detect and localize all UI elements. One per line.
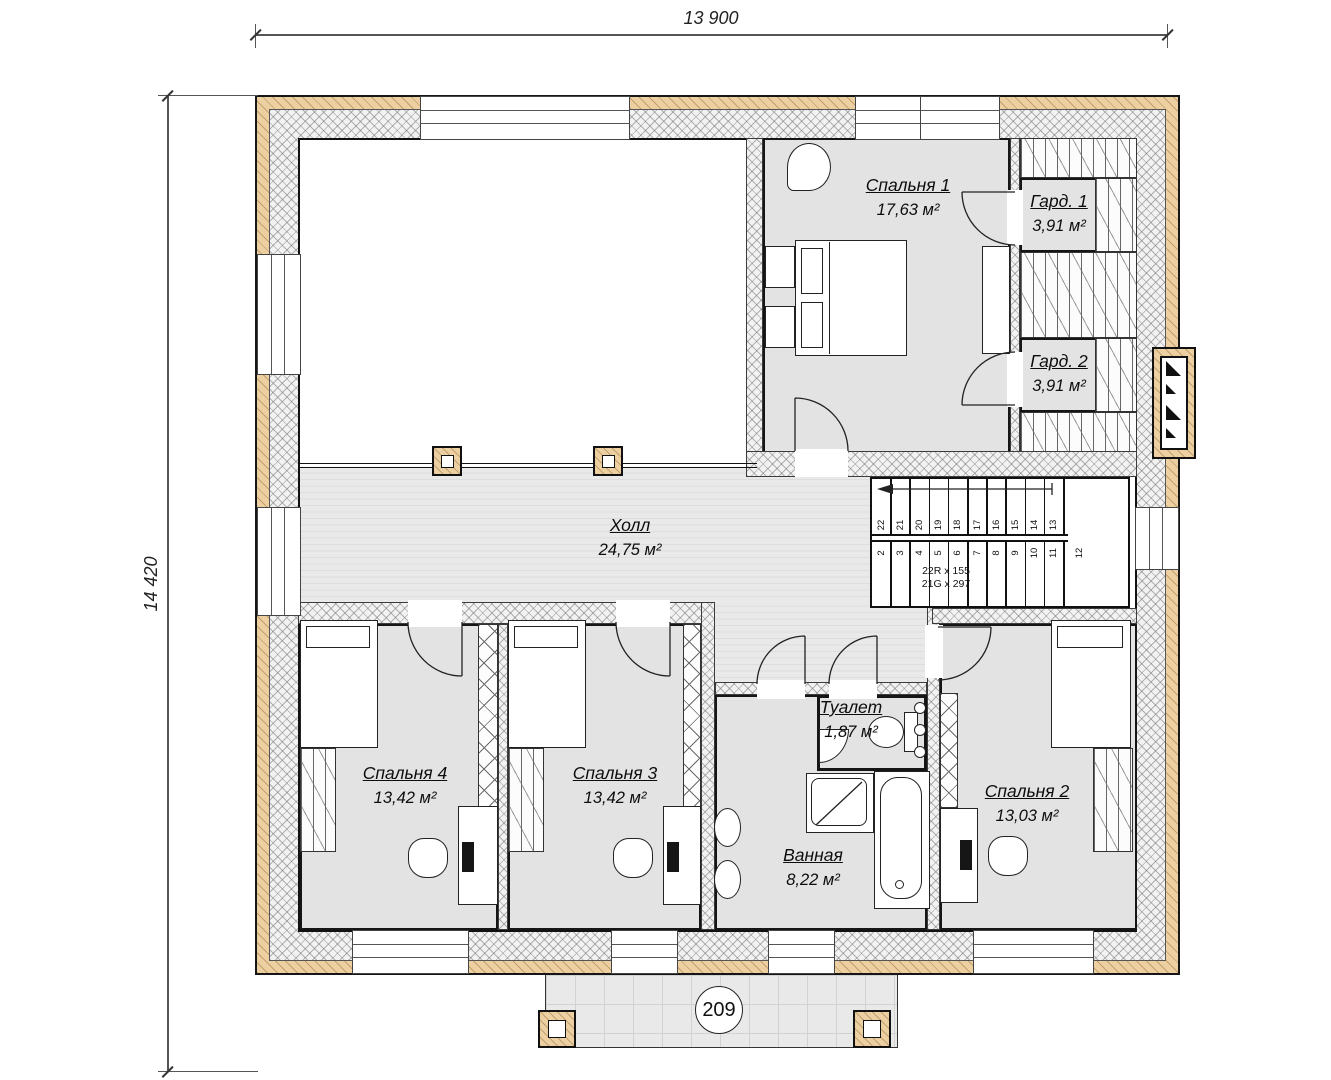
stairs-mid-rail: [872, 534, 1068, 542]
dimension-ext-line: [158, 95, 258, 96]
nightstand: [765, 246, 795, 288]
wall-void-bedroom1: [746, 138, 763, 453]
wardrobe-shelf-band-top: [1020, 138, 1137, 178]
stair-tread-line: [948, 479, 950, 534]
stair-tread-number: 6: [952, 543, 964, 563]
stair-tread-number: 21: [895, 515, 907, 535]
room-name: Спальня 1: [833, 172, 983, 198]
dimension-ext-line: [158, 1071, 258, 1072]
wardrobe-shelf-band-mid: [1020, 252, 1137, 338]
room-area: 1,87 м²: [809, 720, 893, 745]
terrace-number: 209: [702, 999, 735, 1022]
stair-tread-line: [890, 542, 892, 606]
window-top-bedroom1: [855, 96, 1000, 140]
window-left-void: [257, 254, 301, 375]
stair-tread-line: [1044, 542, 1046, 606]
stair-tread-line: [929, 542, 931, 606]
stair-tread-line: [929, 479, 931, 534]
stair-tread-line: [986, 479, 988, 534]
wardrobe-unit: [508, 748, 544, 852]
door-opening-bedroom4: [408, 600, 462, 627]
shower-tray: [811, 778, 867, 826]
stair-tread-line: [1063, 542, 1065, 606]
room-label-bedroom3: Спальня 3 13,42 м²: [540, 760, 690, 811]
desk-chair: [988, 836, 1028, 876]
room-area: 13,42 м²: [540, 786, 690, 811]
room-area: 24,75 м²: [555, 538, 705, 563]
dimension-width-label: 13 900: [651, 8, 771, 29]
hall-pocket-floor: [715, 600, 927, 684]
stair-tread-number: 14: [1029, 515, 1041, 535]
towel-radiator: [914, 724, 926, 736]
closet: [478, 624, 498, 808]
stair-tread-number: 4: [914, 543, 926, 563]
room-name: Спальня 2: [952, 778, 1102, 804]
stair-tread-line: [1005, 542, 1007, 606]
stairs-note-line1: 22R x 155: [900, 565, 992, 577]
room-name: Туалет: [809, 694, 893, 720]
room-label-bedroom2: Спальня 2 13,03 м²: [952, 778, 1102, 829]
dimension-line-left: [167, 95, 169, 1072]
terrace-post-right-core: [863, 1020, 881, 1038]
stair-tread-line: [1025, 542, 1027, 606]
room-area: 13,03 м²: [952, 804, 1102, 829]
stair-tread-number: 20: [914, 515, 926, 535]
room-label-toilet: Туалет 1,87 м²: [809, 694, 893, 745]
sink: [714, 808, 741, 847]
void-railing: [298, 463, 757, 468]
hall-post-left-core: [441, 455, 454, 468]
window-bottom-bedroom2: [973, 930, 1094, 974]
hall-post-left: [432, 446, 462, 476]
wall-bedroom1-wardrobes: [1010, 138, 1020, 455]
room-name: Спальня 3: [540, 760, 690, 786]
towel-radiator: [914, 702, 926, 714]
stair-tread-number: 12: [1074, 543, 1086, 563]
terrace-post-left-core: [548, 1020, 566, 1038]
dimension-line-top: [255, 34, 1168, 36]
room-area: 8,22 м²: [738, 868, 888, 893]
stair-tread-number: 19: [933, 515, 945, 535]
pillow: [801, 248, 823, 294]
monitor: [667, 842, 679, 872]
stairs-note-line2: 21G x 297: [900, 578, 992, 590]
stair-tread-line: [948, 542, 950, 606]
stair-tread-number: 10: [1029, 543, 1041, 563]
terrace-number-badge: 209: [695, 986, 743, 1034]
terrace-post-right: [853, 1010, 891, 1048]
shower: [806, 773, 874, 833]
wall-bedroom3-bathroom: [701, 602, 715, 930]
window-right-stairs: [1135, 507, 1179, 570]
door-opening-bedroom1: [795, 449, 848, 477]
terrace-post-left: [538, 1010, 576, 1048]
window-left-hall: [257, 507, 301, 616]
bathtub-drain: [895, 880, 904, 889]
stair-tread-number: 22: [876, 515, 888, 535]
stair-tread-number: 9: [1010, 543, 1022, 563]
window-bottom-bedroom3: [611, 930, 678, 974]
stair-tread-line: [909, 542, 911, 606]
stair-tread-line: [967, 542, 969, 606]
room-label-bedroom1: Спальня 1 17,63 м²: [833, 172, 983, 223]
door-opening-bedroom2: [925, 625, 943, 678]
stair-tread-line: [909, 479, 911, 534]
desk-chair: [613, 838, 653, 878]
wardrobe2-shelving: [1095, 338, 1137, 412]
monitor: [462, 842, 474, 872]
window-bottom-bedroom4: [352, 930, 469, 974]
hall-post-right-core: [602, 455, 615, 468]
stair-tread-number: 5: [933, 543, 945, 563]
stair-tread-line: [1044, 479, 1046, 534]
room-label-bathroom: Ванная 8,22 м²: [738, 842, 888, 893]
nightstand: [765, 306, 795, 348]
pillow: [514, 626, 578, 648]
room-name: Ванная: [738, 842, 888, 868]
room-name: Гард. 1: [1021, 188, 1097, 214]
floor-plan: 22R x 155 21G x 297 22212019181716151413…: [0, 0, 1331, 1080]
room-name: Спальня 4: [330, 760, 480, 786]
stair-tread-line: [890, 479, 892, 534]
stair-tread-number: 2: [876, 543, 888, 563]
stair-tread-line: [967, 479, 969, 534]
staircase: 22R x 155 21G x 297 22212019181716151413…: [870, 477, 1130, 608]
stair-tread-number: 17: [972, 515, 984, 535]
stair-tread-number: 15: [1010, 515, 1022, 535]
tv-cabinet: [982, 246, 1010, 354]
window-top-void: [420, 96, 630, 140]
wardrobe1-shelving: [1095, 178, 1137, 252]
door-opening-bedroom3: [616, 600, 670, 627]
towel-radiator: [914, 746, 926, 758]
stair-tread-number: 3: [895, 543, 907, 563]
room-name: Холл: [555, 512, 705, 538]
stair-tread-line: [986, 542, 988, 606]
stair-tread-number: 16: [991, 515, 1003, 535]
room-label-bedroom4: Спальня 4 13,42 м²: [330, 760, 480, 811]
window-mullion: [920, 96, 921, 140]
armchair: [787, 143, 831, 191]
monitor: [960, 840, 972, 870]
stair-tread-number: 13: [1048, 515, 1060, 535]
stair-tread-number: 7: [972, 543, 984, 563]
wardrobe-shelf-band-bottom: [1020, 412, 1137, 455]
room-label-wardrobe2: Гард. 2 3,91 м²: [1021, 348, 1097, 399]
desk-chair: [408, 838, 448, 878]
sink: [714, 860, 741, 899]
stair-tread-number: 8: [991, 543, 1003, 563]
bed-blanket-line: [829, 242, 830, 354]
stair-tread-line: [1005, 479, 1007, 534]
room-label-wardrobe1: Гард. 1 3,91 м²: [1021, 188, 1097, 239]
room-area: 3,91 м²: [1021, 214, 1097, 239]
dimension-height-label: 14 420: [141, 519, 165, 649]
pillow: [801, 302, 823, 348]
room-area: 17,63 м²: [833, 198, 983, 223]
stair-tread-line: [1025, 479, 1027, 534]
stair-tread-number: 11: [1048, 543, 1060, 563]
window-bottom-bathroom: [768, 930, 835, 974]
room-name: Гард. 2: [1021, 348, 1097, 374]
stair-tread-line: [1063, 479, 1065, 534]
pillow: [306, 626, 370, 648]
pillow: [1057, 626, 1123, 648]
wall-bedroom4-bedroom3: [498, 624, 508, 930]
hall-post-right: [593, 446, 623, 476]
room-area: 13,42 м²: [330, 786, 480, 811]
door-opening-bathroom: [757, 680, 805, 699]
stair-tread-number: 18: [952, 515, 964, 535]
room-area: 3,91 м²: [1021, 374, 1097, 399]
room-label-hall: Холл 24,75 м²: [555, 512, 705, 563]
